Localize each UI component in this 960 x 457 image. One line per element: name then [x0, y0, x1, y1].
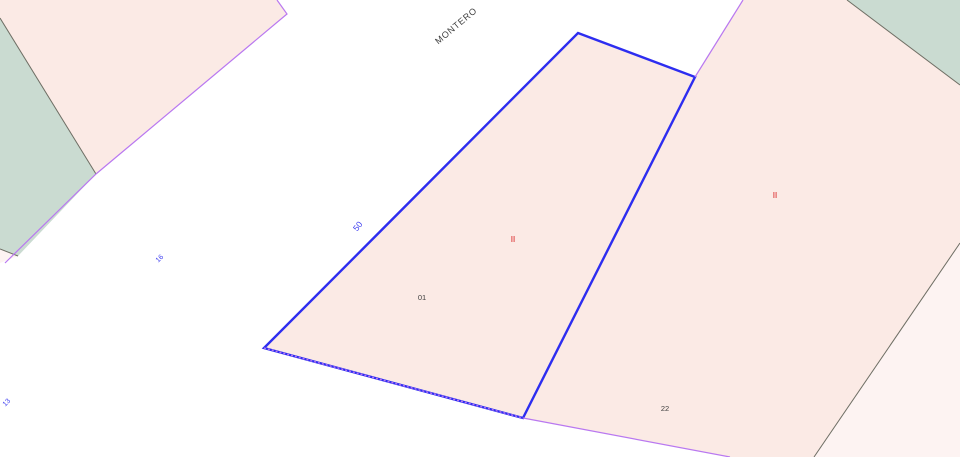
cadastral-map[interactable]: MONTERO50161301IIII22: [0, 0, 960, 457]
street-number-16: 16: [155, 254, 166, 265]
floors-ii-selected: II: [511, 235, 515, 244]
street-name: MONTERO: [433, 5, 479, 46]
map-canvas[interactable]: MONTERO50161301IIII22: [0, 0, 960, 457]
street-number-50: 50: [351, 219, 365, 233]
street-number-13: 13: [2, 398, 13, 409]
parcel-number-22: 22: [661, 404, 669, 413]
floors-ii-right: II: [773, 191, 777, 200]
parcel-number-01: 01: [418, 293, 426, 302]
